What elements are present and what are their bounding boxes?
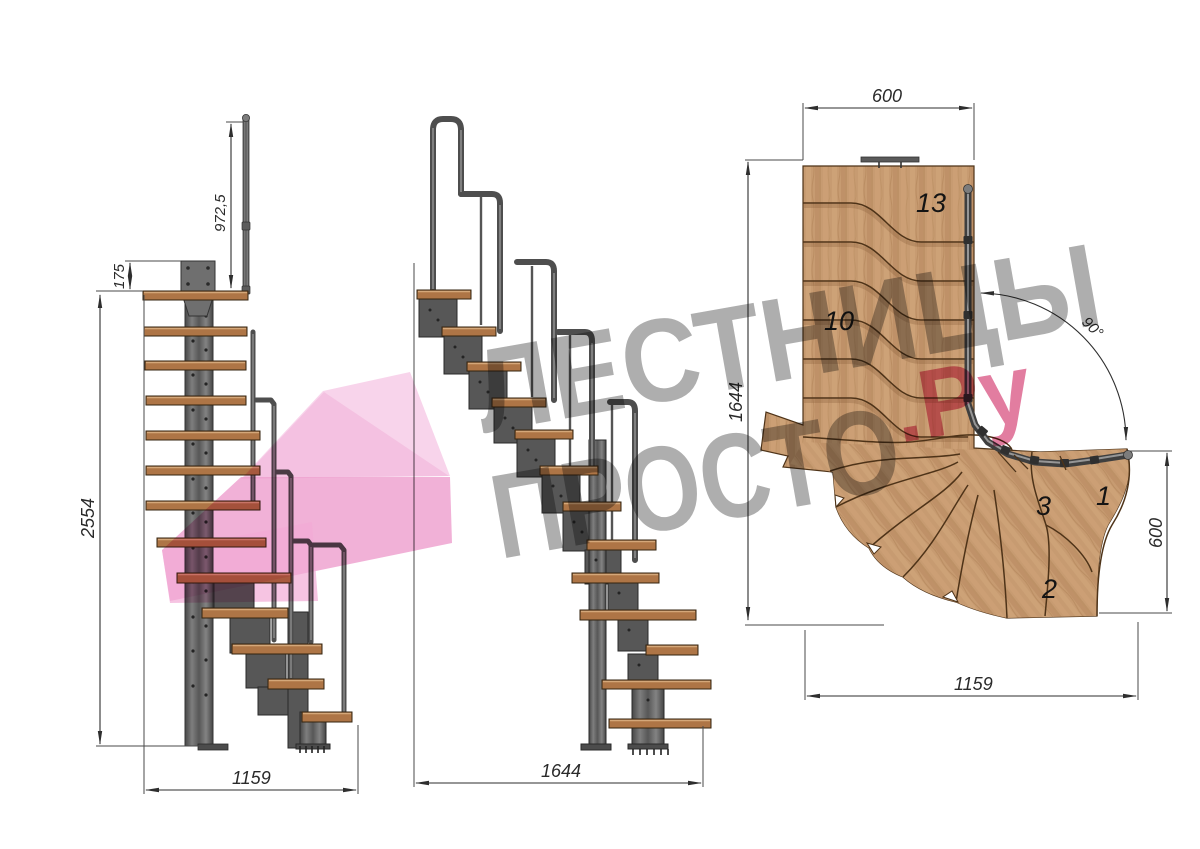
svg-text:1644: 1644 — [541, 761, 581, 781]
svg-text:1: 1 — [1096, 481, 1111, 511]
svg-text:1159: 1159 — [954, 674, 993, 694]
svg-text:600: 600 — [872, 86, 902, 106]
svg-text:175: 175 — [111, 263, 128, 289]
svg-text:2554: 2554 — [78, 498, 98, 539]
svg-text:13: 13 — [916, 188, 946, 218]
svg-text:3: 3 — [1036, 491, 1051, 521]
svg-text:1159: 1159 — [232, 768, 271, 788]
svg-text:2: 2 — [1041, 574, 1057, 604]
svg-text:600: 600 — [1146, 518, 1166, 548]
svg-text:972,5: 972,5 — [212, 194, 229, 232]
